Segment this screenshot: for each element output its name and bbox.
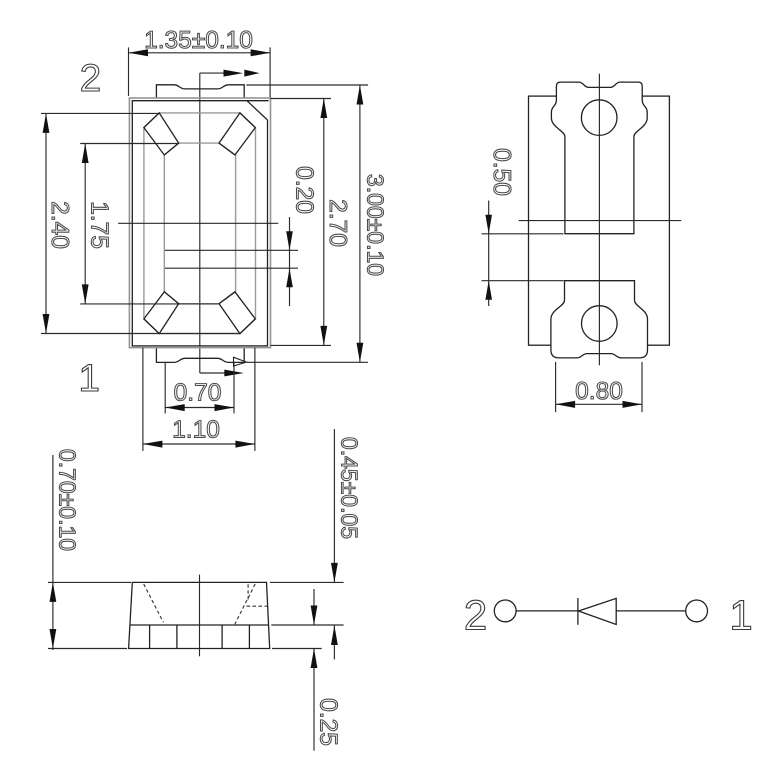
svg-text:1: 1 <box>78 357 99 400</box>
svg-text:0.70: 0.70 <box>174 379 222 406</box>
svg-text:2: 2 <box>80 57 101 100</box>
svg-text:0.20: 0.20 <box>291 166 318 214</box>
svg-text:1.75: 1.75 <box>86 201 113 249</box>
svg-text:1: 1 <box>729 592 752 639</box>
svg-text:0.45±0.05: 0.45±0.05 <box>337 437 363 539</box>
svg-text:1.10: 1.10 <box>172 416 220 443</box>
svg-text:1.35±0.10: 1.35±0.10 <box>144 27 253 54</box>
svg-text:3.00±0.10: 3.00±0.10 <box>363 174 389 276</box>
svg-text:0.80: 0.80 <box>575 378 623 405</box>
svg-text:0.70±0.10: 0.70±0.10 <box>55 449 81 551</box>
svg-text:2: 2 <box>464 592 487 639</box>
svg-text:2.40: 2.40 <box>46 201 73 249</box>
svg-text:0.50: 0.50 <box>488 148 515 196</box>
svg-text:2.70: 2.70 <box>324 199 351 247</box>
svg-text:0.25: 0.25 <box>315 698 342 746</box>
